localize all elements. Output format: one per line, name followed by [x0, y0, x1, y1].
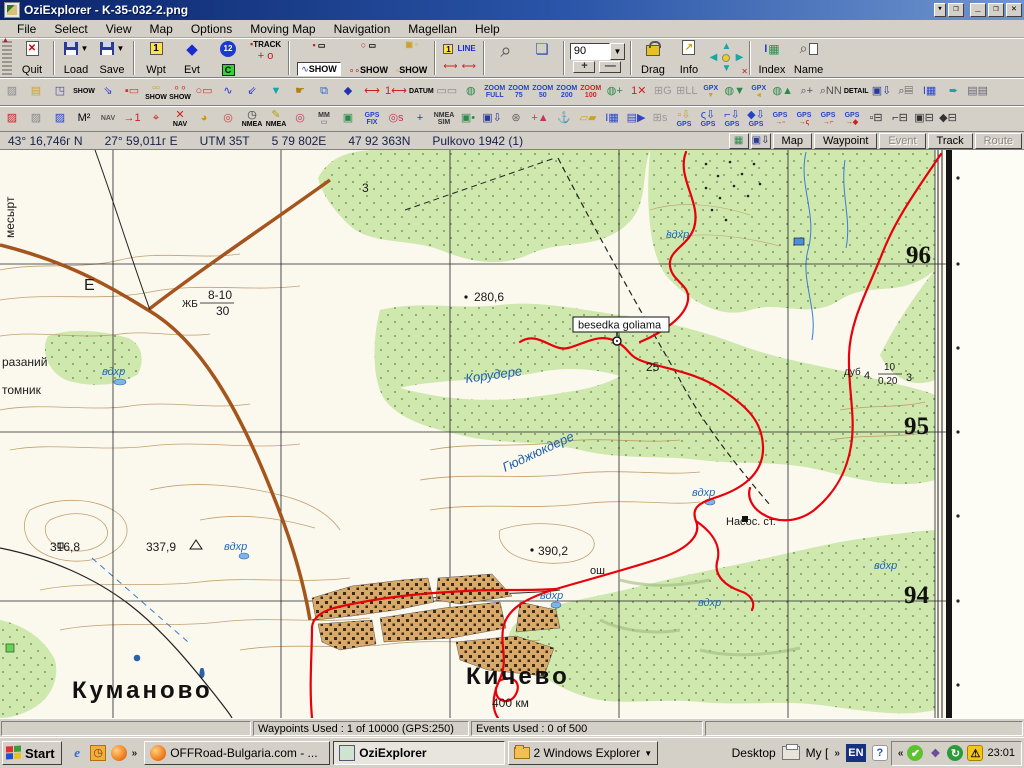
- grid-g-icon[interactable]: ⊞G: [651, 81, 675, 103]
- map-label: томник: [2, 383, 42, 397]
- map-label: Насос. ст.: [726, 516, 776, 528]
- menu-map[interactable]: Map: [141, 21, 182, 37]
- map-label: 94: [904, 582, 930, 609]
- nav-strip-icon[interactable]: NAV: [96, 108, 120, 130]
- name-search-button[interactable]: ⌕ Name: [790, 39, 827, 77]
- zoom-out-button[interactable]: —: [599, 61, 621, 73]
- ozi-task-icon: [339, 745, 355, 761]
- menu-file[interactable]: File: [8, 21, 45, 37]
- track-control-button[interactable]: ▪TRACK + o: [246, 39, 285, 77]
- waypoint-label[interactable]: besedka goliama: [573, 317, 669, 332]
- task-oziexplorer[interactable]: OziExplorer: [333, 741, 505, 765]
- load-button[interactable]: ▼ Load: [58, 39, 94, 77]
- zoom-200-button[interactable]: ZOOM200: [555, 81, 579, 103]
- track-show-small-icon[interactable]: SHOW: [72, 81, 96, 103]
- pan-right-icon[interactable]: ▶: [736, 52, 744, 63]
- map-label: 96: [906, 242, 931, 269]
- show-events-button[interactable]: ○ ▭ ∘∘SHOW: [345, 39, 392, 77]
- taskbar: Start e ◷ » OFFRoad-Bulgaria.com - ... O…: [0, 737, 1024, 768]
- tray-update-icon[interactable]: ↻: [947, 745, 963, 761]
- menu-options[interactable]: Options: [182, 21, 241, 37]
- wp-blocks-icon[interactable]: ⧉: [312, 81, 336, 103]
- language-indicator[interactable]: EN: [846, 744, 866, 762]
- globe-load-icon[interactable]: ◍▲: [771, 81, 795, 103]
- gps-toolbar: ▨▨▨M²NAV→1⌖✕NAV◕◎◷NMEA✎NMEA◎MM▭▣GPSFIX◎s…: [0, 106, 1024, 132]
- track-to-gps-icon[interactable]: ς⇩GPS: [696, 108, 720, 130]
- map-label: 30: [216, 304, 230, 318]
- mode-map-button[interactable]: Map: [773, 133, 812, 149]
- status-bar: Waypoints Used : 1 of 10000 (GPS:250) Ev…: [0, 718, 1024, 737]
- map-label: 0,20: [878, 376, 898, 387]
- save-button[interactable]: ▼ Save: [94, 39, 130, 77]
- mag-nn-icon[interactable]: ⌕NN: [819, 81, 843, 103]
- plus-flag-icon[interactable]: +▲: [528, 108, 552, 130]
- magnify-button[interactable]: ⌕: [488, 39, 524, 77]
- menu-navigation[interactable]: Navigation: [325, 21, 400, 37]
- map-label: 95: [904, 413, 929, 440]
- my-documents-label[interactable]: My [: [806, 746, 829, 760]
- gps-to-route-icon[interactable]: GPS→⌐: [816, 108, 840, 130]
- coordinate-bar: 43° 16,746г N 27° 59,011г E UTM 35T 5 79…: [0, 132, 1024, 150]
- tray-clock: 23:01: [987, 747, 1015, 759]
- ruler-wp-icon[interactable]: 1⟷: [384, 81, 408, 103]
- map-label: 8-10: [208, 288, 232, 302]
- map-viewport[interactable]: месыртЕразанийтомник3вдхр280,6ЖБ8-1030вд…: [0, 150, 1024, 718]
- desktop-screen: OziExplorer - K-35-032-2.png ▾ ❐ _ ❐ ✕ F…: [0, 0, 1024, 768]
- mode-track-button[interactable]: Track: [928, 133, 973, 149]
- utm-zone-readout: UTM 35T: [200, 134, 250, 148]
- event-names-show-icon[interactable]: ∘∘SHOW: [168, 81, 192, 103]
- map-label: Е: [84, 277, 95, 294]
- map-label: вдхр: [666, 229, 689, 241]
- map-label: Куманово: [72, 677, 213, 704]
- magnifier-icon: ⌕: [500, 40, 511, 63]
- mag-plus-icon[interactable]: ⌕+: [795, 81, 819, 103]
- map-label: 4: [864, 370, 870, 382]
- m2-icon[interactable]: M²: [72, 108, 96, 130]
- anchor-icon[interactable]: ⚓: [552, 108, 576, 130]
- map-label: 3: [362, 181, 369, 195]
- gps-to-event-icon[interactable]: GPS→◆: [840, 108, 864, 130]
- nmea-sim-icon[interactable]: NMEASIM: [432, 108, 456, 130]
- map-label: ош: [590, 565, 605, 577]
- minimize-button[interactable]: _: [970, 3, 986, 17]
- folder-icon: [514, 747, 529, 759]
- easting-readout: 5 79 802E: [272, 134, 327, 148]
- lock-icon: [646, 45, 660, 56]
- target-s-icon[interactable]: ◎s: [384, 108, 408, 130]
- wp-page-icon[interactable]: ▤: [24, 81, 48, 103]
- zoom-full-button[interactable]: ZOOMFULL: [483, 81, 507, 103]
- pan-left-icon[interactable]: ◀: [710, 52, 718, 63]
- map-label: вдхр: [540, 590, 563, 602]
- child-menu-button[interactable]: ▾: [934, 3, 946, 17]
- tray-warning-icon[interactable]: ⚠: [967, 745, 983, 761]
- pan-close-icon[interactable]: ✕: [741, 67, 748, 76]
- desktop-toolbar: Desktop My [ » EN ?: [732, 744, 888, 762]
- event-to-gps-icon[interactable]: ◆⇩GPS: [744, 108, 768, 130]
- print-map-icon[interactable]: ▣⊟: [912, 108, 936, 130]
- waypoint-create-button[interactable]: 1 Wpt: [138, 39, 174, 77]
- map-import-icon[interactable]: ◍: [459, 81, 483, 103]
- index-image-icon[interactable]: I▦: [600, 108, 624, 130]
- map-label: месырт: [3, 196, 17, 238]
- pan-up-icon[interactable]: ▲: [721, 41, 731, 52]
- name-line-toggles[interactable]: 1LINE ⟷⟷: [439, 39, 480, 77]
- save-floppy-icon: [100, 42, 114, 55]
- pie-icon[interactable]: ◕: [192, 108, 216, 130]
- quit-button[interactable]: ✕ Quit: [14, 39, 50, 77]
- image-blue-icon[interactable]: ▨: [48, 108, 72, 130]
- pages-icon[interactable]: ▤▤: [966, 81, 990, 103]
- track-reduce-icon[interactable]: ⇙: [240, 81, 264, 103]
- longitude-readout: 27° 59,011г E: [105, 134, 178, 148]
- save-track-icon[interactable]: ▣⇩: [480, 108, 504, 130]
- northing-readout: 47 92 363N: [348, 134, 410, 148]
- child-restore-button[interactable]: ❐: [948, 3, 964, 17]
- gpx-globe-icon[interactable]: ◍▼: [723, 81, 747, 103]
- my-documents-icon[interactable]: [782, 746, 800, 760]
- close-button[interactable]: ✕: [1006, 3, 1022, 17]
- gps-to-track-icon[interactable]: GPS→ς: [792, 108, 816, 130]
- gpx-write-icon[interactable]: GPX▼: [699, 81, 723, 103]
- zoom-75-button[interactable]: ZOOM75: [507, 81, 531, 103]
- latitude-readout: 43° 16,746г N: [8, 134, 83, 148]
- load-floppy-icon: [64, 42, 78, 55]
- grid-config-icon[interactable]: ⊛: [504, 108, 528, 130]
- gps-to-wp-icon[interactable]: GPS→▫: [768, 108, 792, 130]
- print-wp-icon[interactable]: ▫⊟: [864, 108, 888, 130]
- window-title: OziExplorer - K-35-032-2.png: [24, 3, 188, 17]
- map-image-button[interactable]: ▦: [729, 133, 749, 149]
- page-arrow-icon[interactable]: ▤▶: [624, 108, 648, 130]
- pan-center-icon[interactable]: [722, 54, 730, 62]
- restore-button[interactable]: ❐: [988, 3, 1004, 17]
- ie-icon[interactable]: e: [69, 745, 86, 762]
- quit-icon: ✕: [26, 41, 39, 56]
- map-label: вдхр: [692, 487, 715, 499]
- map-label: вдхр: [224, 541, 247, 553]
- route-to-gps-icon[interactable]: ⌐⇩GPS: [720, 108, 744, 130]
- zoom-in-button[interactable]: +: [573, 61, 595, 73]
- svg-text:besedka goliama: besedka goliama: [578, 320, 662, 332]
- track-profile-icon[interactable]: ∿: [216, 81, 240, 103]
- pan-icon[interactable]: +: [408, 108, 432, 130]
- track-arrows-icon[interactable]: ⇘: [96, 81, 120, 103]
- map-label: 3: [906, 372, 912, 384]
- start-button[interactable]: Start: [2, 741, 62, 765]
- map-label: ЖБ: [182, 299, 198, 310]
- map-label: вдхр: [102, 366, 125, 378]
- lifering-icon[interactable]: ◎: [216, 108, 240, 130]
- tray-help-icon[interactable]: ?: [872, 745, 888, 761]
- map-delete-icon[interactable]: 1✕: [627, 81, 651, 103]
- nmea-pencil-icon[interactable]: ✎NMEA: [264, 108, 288, 130]
- map-label: 10: [884, 362, 896, 373]
- quick-save-button[interactable]: ▣⇩: [751, 133, 771, 149]
- print-event-icon[interactable]: ◆⊟: [936, 108, 960, 130]
- zoom-dropdown-button[interactable]: ▼: [610, 43, 625, 60]
- track-point-icon[interactable]: ⌖: [144, 108, 168, 130]
- map-copy-icon: ❏: [535, 40, 548, 58]
- zoom-100-button[interactable]: ZOOM100: [579, 81, 603, 103]
- gps-fix-icon[interactable]: GPSFIX: [360, 108, 384, 130]
- map-label: 280,6: [474, 290, 504, 304]
- menu-help[interactable]: Help: [466, 21, 509, 37]
- menu-select[interactable]: Select: [45, 21, 96, 37]
- firefox-task-icon: [150, 745, 166, 761]
- datum-icon[interactable]: DATUM: [408, 81, 435, 103]
- target-icon[interactable]: ◎: [288, 108, 312, 130]
- menu-moving-map[interactable]: Moving Map: [241, 21, 324, 37]
- index-small-icon[interactable]: I▦: [918, 81, 942, 103]
- map-label: 25: [646, 360, 660, 374]
- image-gray-icon[interactable]: ▨: [24, 108, 48, 130]
- blank-strip-icon[interactable]: ▭▭: [435, 81, 459, 103]
- task-explorer-group[interactable]: 2 Windows Explorer ▼: [508, 741, 658, 765]
- detail-icon[interactable]: DETAIL: [843, 81, 870, 103]
- map-label: 316,8: [50, 540, 80, 554]
- wp-names-show-icon[interactable]: ▫▫SHOW: [144, 81, 168, 103]
- zoom-control: 90 ▼ + —: [570, 43, 625, 73]
- toolbar-drag-handle[interactable]: [2, 41, 12, 75]
- pan-down-icon[interactable]: ▼: [721, 63, 731, 74]
- tray-collapse-icon[interactable]: «: [898, 748, 904, 759]
- mode-route-button: Route: [975, 133, 1022, 149]
- topo-map: месыртЕразанийтомник3вдхр280,6ЖБ8-1030вд…: [0, 150, 1024, 718]
- quick-launch-overflow-icon[interactable]: »: [132, 748, 138, 759]
- floppy-down-icon[interactable]: ▣⇩: [870, 81, 894, 103]
- system-tray: « ✔ ❖ ↻ ⚠ 23:01: [891, 741, 1022, 766]
- map-properties-button[interactable]: ❏: [524, 39, 560, 77]
- status-right-panel: [705, 721, 1023, 736]
- map-label: вдхр: [698, 597, 721, 609]
- grid-ll-icon[interactable]: ⊞LL: [675, 81, 699, 103]
- comment-icon: C: [222, 64, 235, 76]
- events-used-panel: Events Used : 0 of 500: [471, 721, 703, 736]
- show-waypoints-button[interactable]: ▪ ▭ ∿SHOW: [293, 39, 345, 77]
- event-icon: ◆: [186, 40, 198, 58]
- tray-messenger-icon[interactable]: ✔: [907, 745, 923, 761]
- firefox-icon[interactable]: [111, 745, 127, 761]
- show-track-button[interactable]: ▣ ▫ ▫SHOW: [392, 39, 431, 77]
- quick-launch: e ◷ »: [65, 745, 142, 762]
- wp-show-toggle-icon[interactable]: ◳: [48, 81, 72, 103]
- zoom-value-input[interactable]: 90: [570, 43, 610, 60]
- app-icon: [4, 2, 20, 18]
- map-add-icon[interactable]: ◍+: [603, 81, 627, 103]
- waypoint-icon: 1: [150, 42, 163, 55]
- page-find-icon[interactable]: ⌕▤: [894, 81, 918, 103]
- monitor-rec-icon[interactable]: ▣•: [456, 108, 480, 130]
- event-page-icon[interactable]: ◆: [336, 81, 360, 103]
- hand-edit-icon[interactable]: ☛: [288, 81, 312, 103]
- ruler-red-icon[interactable]: ⟷: [360, 81, 384, 103]
- nav-cancel-icon[interactable]: ✕NAV: [168, 108, 192, 130]
- map-margin: [938, 150, 1024, 718]
- map-check-icon[interactable]: ▨: [0, 81, 24, 103]
- map-label: 390,2: [538, 544, 568, 558]
- map-label: вдхр: [874, 560, 897, 572]
- desktop-toolbar-label[interactable]: Desktop: [732, 746, 776, 760]
- gpx-read-icon[interactable]: GPX◄: [747, 81, 771, 103]
- map-pan-pad[interactable]: ▲ ◀▶ ▼ ✕: [707, 41, 746, 74]
- wp-number-icon: 12: [220, 41, 236, 57]
- info-button[interactable]: ↗ Info: [671, 39, 707, 77]
- info-page-icon: ↗: [682, 40, 695, 55]
- map-label: 337,9: [146, 540, 176, 554]
- map-label: разаний: [2, 355, 47, 369]
- menu-bar: FileSelectViewMapOptionsMoving MapNaviga…: [0, 20, 1024, 38]
- nmea-clock-icon[interactable]: ◷NMEA: [240, 108, 264, 130]
- grid-s-icon[interactable]: ⊞s: [648, 108, 672, 130]
- wp-list-icon[interactable]: ▪▭: [120, 81, 144, 103]
- map-label: дуб: [844, 366, 861, 378]
- main-toolbar: ✕ Quit ▼ Load ▼ Save 1 Wpt ◆ Evt 12 C ▪T…: [0, 38, 1024, 78]
- drag-button[interactable]: Drag: [635, 39, 671, 77]
- pages-yellow-icon[interactable]: ▱▰: [576, 108, 600, 130]
- event-list-icon[interactable]: ○▭: [192, 81, 216, 103]
- menu-view[interactable]: View: [97, 21, 141, 37]
- toolbar-overflow-icon[interactable]: »: [834, 748, 840, 759]
- tray-network-icon[interactable]: ❖: [927, 745, 943, 761]
- filter-icon[interactable]: ▼: [264, 81, 288, 103]
- event-create-button[interactable]: ◆ Evt: [174, 39, 210, 77]
- menu-magellan[interactable]: Magellan: [399, 21, 466, 37]
- secondary-toolbar: ▨▤◳SHOW⇘▪▭▫▫SHOW∘∘SHOW○▭∿⇙▼☛⧉◆⟷1⟷DATUM▭▭…: [0, 78, 1024, 106]
- print-track-icon[interactable]: ⌐⊟: [888, 108, 912, 130]
- scheduler-icon[interactable]: ◷: [90, 745, 106, 761]
- group-dropdown-icon: ▼: [644, 749, 652, 758]
- windows-logo-icon: [6, 745, 22, 760]
- title-bar: OziExplorer - K-35-032-2.png ▾ ❐ _ ❐ ✕: [0, 0, 1024, 20]
- map-label: Кичево: [466, 663, 570, 690]
- wp-number-button[interactable]: 12 C: [210, 39, 246, 77]
- mm-ruler-icon[interactable]: MM▭: [312, 108, 336, 130]
- index-button[interactable]: I▦ Index: [754, 39, 790, 77]
- wp-to-gps-icon[interactable]: ▫⇩GPS: [672, 108, 696, 130]
- wp-arrow-icon[interactable]: →1: [120, 108, 144, 130]
- status-empty-panel: [1, 721, 251, 736]
- waypoints-used-panel: Waypoints Used : 1 of 10000 (GPS:250): [253, 721, 469, 736]
- mode-waypoint-button[interactable]: Waypoint: [814, 133, 877, 149]
- zoom-50-button[interactable]: ZOOM50: [531, 81, 555, 103]
- monitor-icon[interactable]: ▣: [336, 108, 360, 130]
- mode-event-button: Event: [879, 133, 925, 149]
- datum-readout: Pulkovo 1942 (1): [432, 134, 523, 148]
- image-red-icon[interactable]: ▨: [0, 108, 24, 130]
- map-label: 400 км: [492, 696, 529, 710]
- next-map-icon[interactable]: ➨: [942, 81, 966, 103]
- task-browser[interactable]: OFFRoad-Bulgaria.com - ...: [144, 741, 330, 765]
